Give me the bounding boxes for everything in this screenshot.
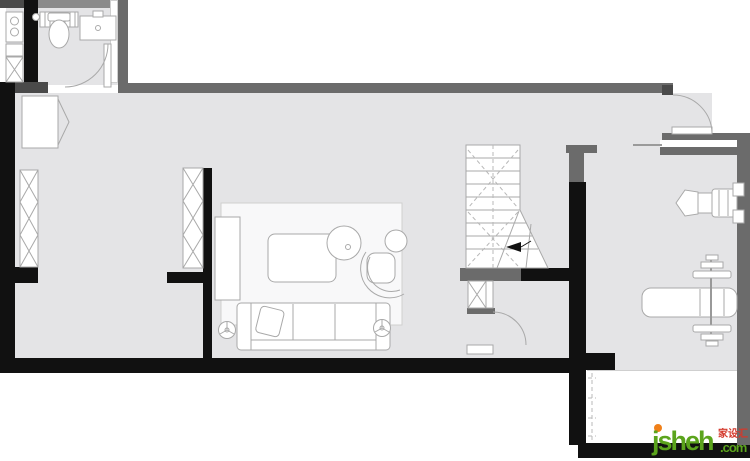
fridge-cabinet (22, 96, 69, 148)
entry-door (672, 95, 712, 134)
furniture-layer (0, 0, 750, 461)
closet-cabinet (468, 281, 486, 308)
tv-console (215, 217, 240, 300)
closet-threshold (467, 345, 493, 354)
watermark-chinese: 家设汇 (718, 425, 748, 440)
closet-door-jamb (486, 281, 493, 308)
closet-door (467, 312, 526, 354)
side-stool-right (374, 320, 391, 337)
watermark-brand: jsheh (652, 426, 713, 456)
watermark-tld: .com (720, 440, 746, 455)
utility-cabinet (6, 57, 23, 82)
plant-large (327, 226, 361, 260)
side-stool-left (219, 322, 236, 339)
bathroom-sink (80, 11, 116, 40)
floor-plan-canvas: jsheh 家设汇 .com (0, 0, 750, 461)
wardrobe-left (20, 170, 38, 267)
gym-machine (676, 183, 744, 223)
plant-small (385, 230, 407, 252)
weight-bench (642, 255, 737, 346)
toilet (48, 13, 70, 48)
utility-shelf (6, 12, 23, 56)
coffee-table (268, 234, 336, 282)
staircase (466, 145, 548, 268)
wardrobe-right (183, 168, 203, 268)
bathroom-door (65, 44, 111, 87)
watermark: jsheh 家设汇 .com (646, 424, 748, 460)
sofa (237, 303, 390, 350)
